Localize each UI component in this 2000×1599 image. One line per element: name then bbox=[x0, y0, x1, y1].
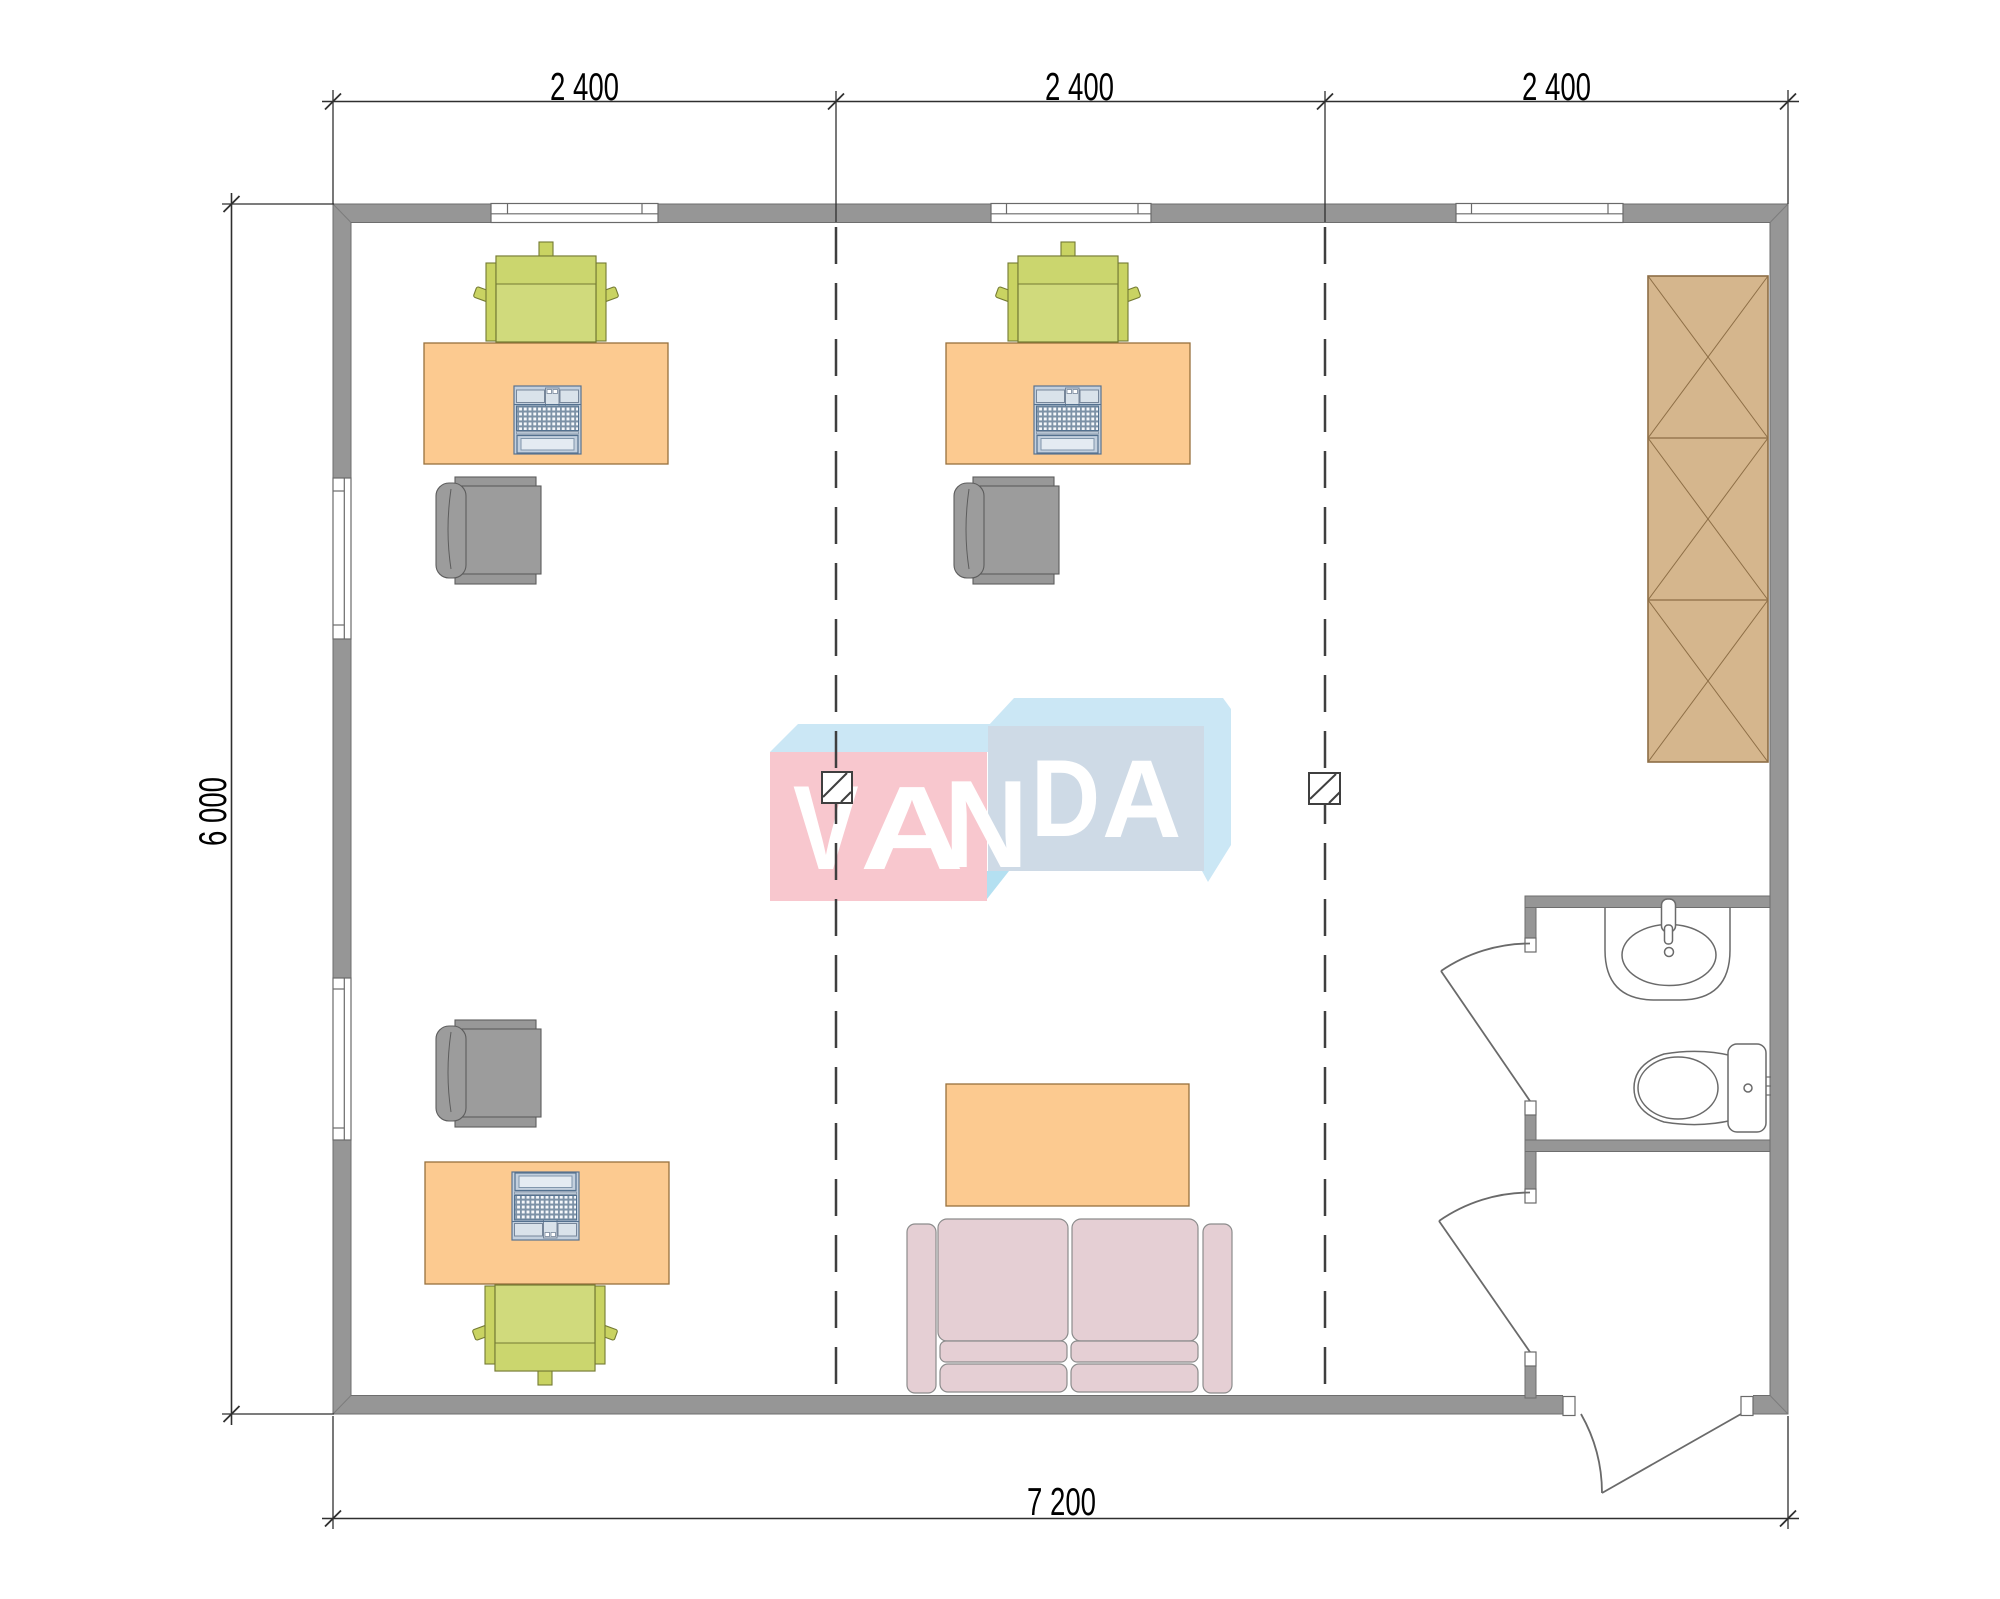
svg-text:D: D bbox=[1031, 737, 1100, 860]
svg-text:N: N bbox=[944, 756, 1028, 894]
svg-text:A: A bbox=[1102, 738, 1181, 861]
svg-text:6 000: 6 000 bbox=[192, 777, 235, 846]
svg-text:2 400: 2 400 bbox=[550, 66, 619, 109]
svg-text:2 400: 2 400 bbox=[1522, 66, 1591, 109]
svg-text:7 200: 7 200 bbox=[1027, 1481, 1096, 1524]
svg-text:2 400: 2 400 bbox=[1045, 66, 1114, 109]
